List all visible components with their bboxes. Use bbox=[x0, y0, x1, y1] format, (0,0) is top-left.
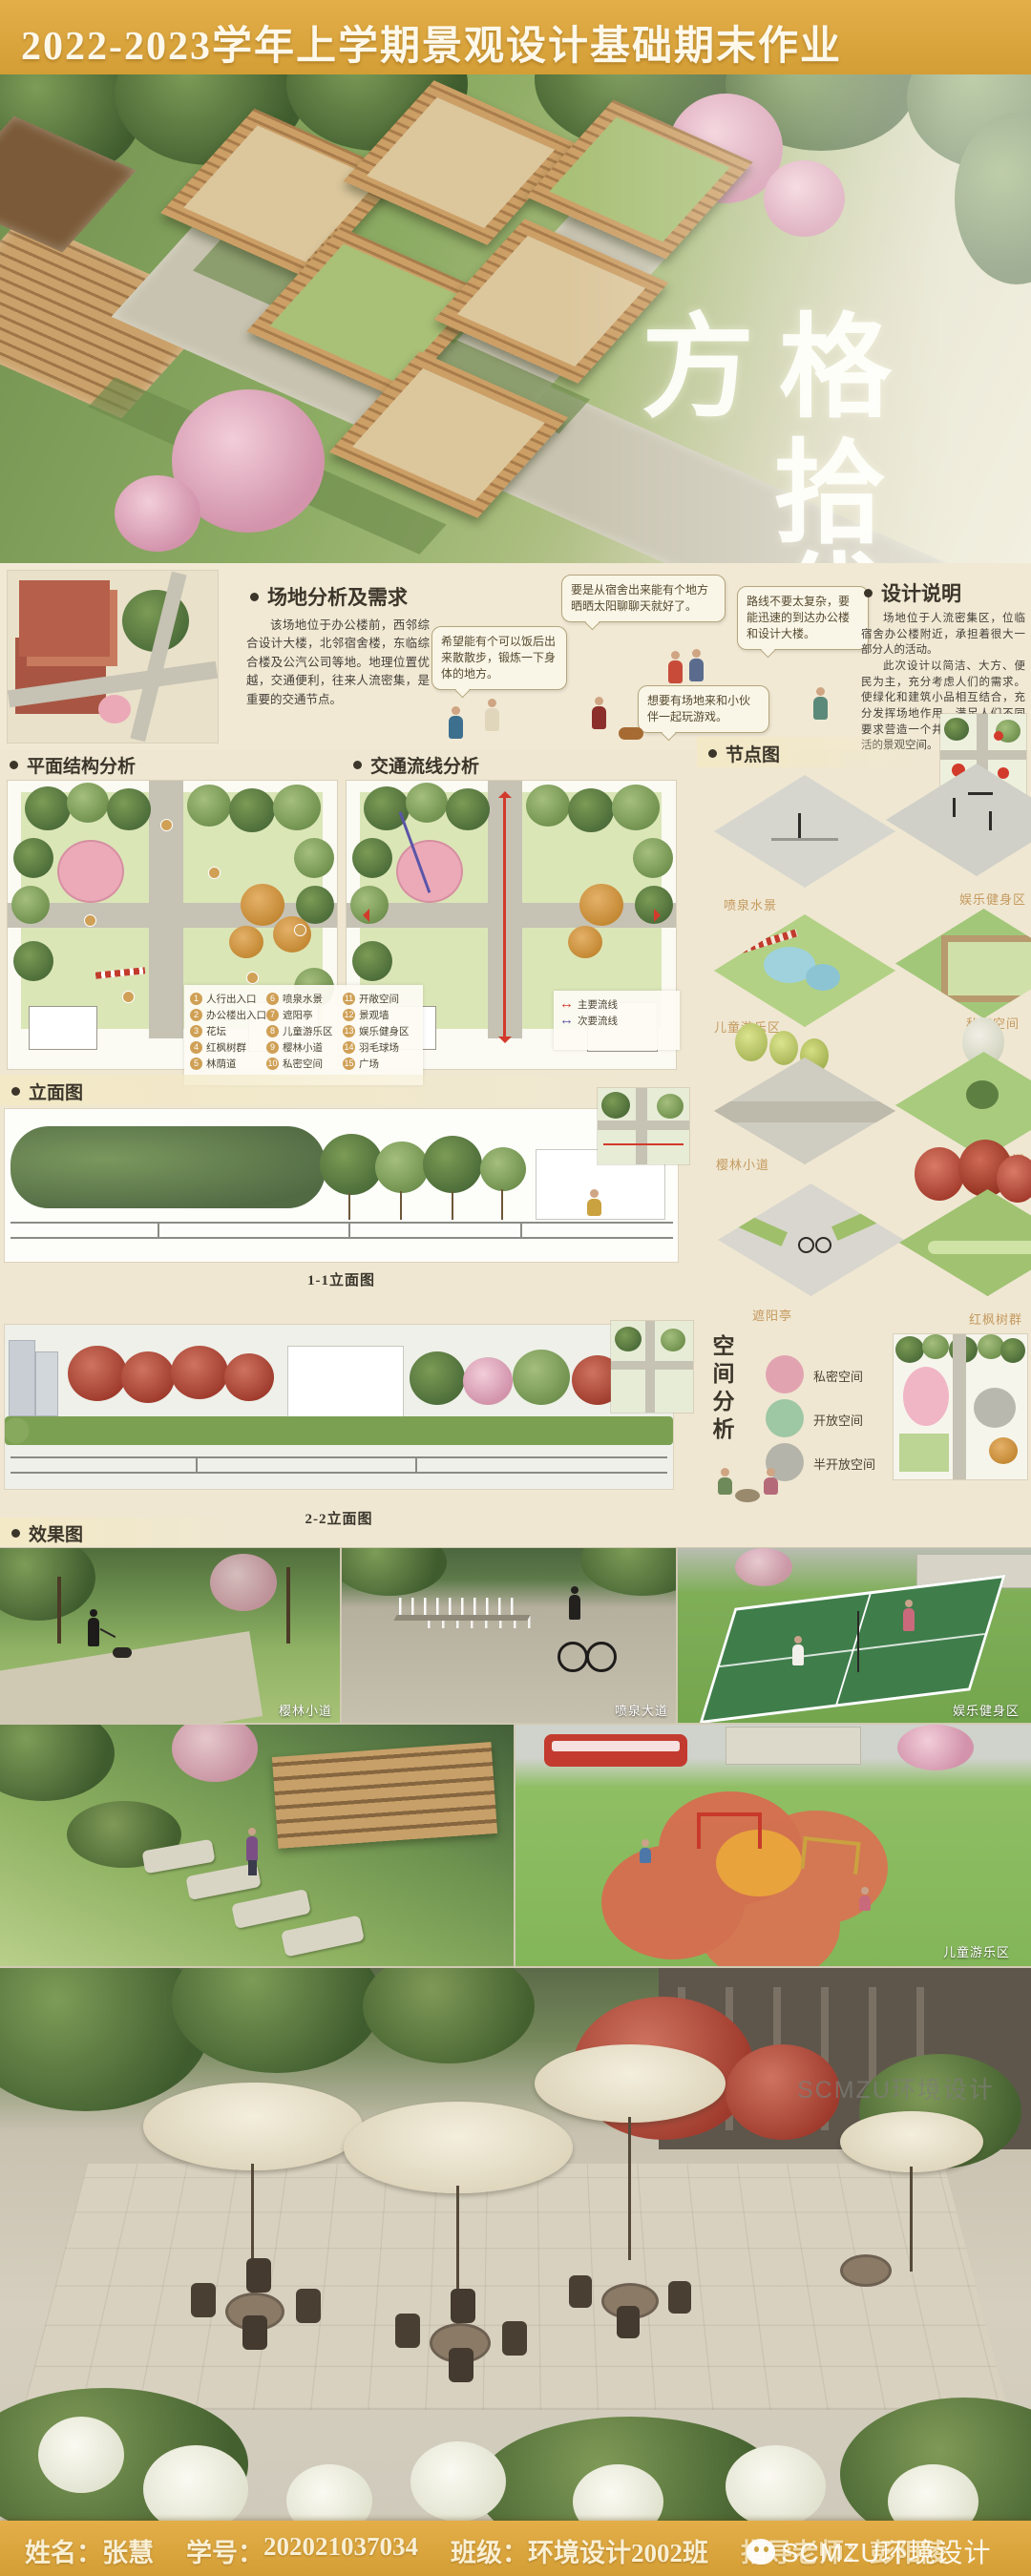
plaza-circle bbox=[57, 840, 124, 903]
dog-illustration bbox=[113, 1647, 132, 1658]
bullet-icon bbox=[250, 593, 259, 601]
umbrella bbox=[344, 2102, 573, 2193]
render-garden-path bbox=[0, 1725, 514, 1966]
umbrella bbox=[840, 2111, 983, 2172]
white-flower bbox=[286, 2464, 372, 2521]
person-illustration bbox=[764, 1468, 778, 1495]
wechat-ghost-icon bbox=[747, 2539, 775, 2565]
render-badminton-court: 娱乐健身区 bbox=[678, 1548, 1031, 1723]
legend-label: 景观墙 bbox=[359, 1008, 389, 1022]
elevation-2-drawing bbox=[5, 1325, 673, 1489]
red-maple-illustration bbox=[915, 1147, 964, 1201]
legend-label: 红枫树群 bbox=[206, 1040, 246, 1055]
legend-swatch-private bbox=[766, 1355, 804, 1393]
bullet-icon bbox=[864, 589, 873, 597]
arrowhead-icon bbox=[654, 909, 667, 922]
hero-render: 方格 拾代 bbox=[0, 74, 1031, 563]
bullet-icon bbox=[353, 761, 362, 769]
person-illustration bbox=[813, 687, 828, 720]
dog-illustration bbox=[619, 727, 643, 740]
hero-title-word-2: 拾代 bbox=[773, 439, 1031, 563]
elevation-key-plan bbox=[598, 1088, 689, 1164]
legend-label: 开敞空间 bbox=[359, 992, 399, 1006]
render-fountain-avenue: 喷泉大道 bbox=[342, 1548, 676, 1723]
space-key-plan bbox=[611, 1321, 693, 1413]
legend-label: 私密空间 bbox=[283, 1057, 323, 1071]
bullet-icon bbox=[708, 749, 717, 758]
tree-illustration bbox=[769, 1031, 798, 1065]
legend-label: 私密空间 bbox=[813, 1367, 863, 1385]
legend-label: 次要流线 bbox=[578, 1014, 618, 1028]
class-name: 环境设计2002班 bbox=[528, 2532, 708, 2569]
player-illustration bbox=[792, 1636, 804, 1665]
child-illustration bbox=[859, 1887, 871, 1911]
legend-label: 儿童游乐区 bbox=[283, 1024, 333, 1038]
person-illustration bbox=[718, 1468, 732, 1495]
legend-label: 娱乐健身区 bbox=[359, 1024, 410, 1038]
node-caption: 红枫树群 bbox=[969, 1309, 1022, 1328]
stone-patio bbox=[23, 2164, 1008, 2410]
play-structure bbox=[800, 1836, 860, 1874]
primary-route-arrow-icon: ↔ bbox=[559, 996, 574, 1013]
person-walking bbox=[246, 1828, 258, 1861]
id-label: 学号： bbox=[186, 2532, 263, 2569]
section-heading-plan-structure: 平面结构分析 bbox=[10, 752, 136, 778]
node-diagram-cherry-path bbox=[714, 1058, 895, 1164]
space-analysis-heading: 空间分析 bbox=[705, 1334, 737, 1445]
design-notes-para1: 场地位于人流密集区，位临宿舍办公楼附近，承担着很大一部分人的活动。 bbox=[861, 611, 1025, 659]
arrowhead-icon bbox=[356, 909, 369, 922]
render-caption: 喷泉大道 bbox=[615, 1701, 668, 1719]
chair bbox=[569, 2275, 592, 2308]
legend-label: 半开放空间 bbox=[813, 1455, 875, 1473]
chair bbox=[191, 2283, 216, 2317]
legend-label: 林荫道 bbox=[206, 1057, 237, 1071]
site-marker bbox=[98, 695, 131, 723]
render-patio: SCMZU环境设计 bbox=[0, 1968, 1031, 2521]
renders-heading: 效果图 bbox=[29, 1520, 83, 1546]
elevation-1-drawing bbox=[5, 1109, 678, 1262]
section-heading-design-notes: 设计说明 bbox=[864, 578, 961, 607]
legend-swatch-open bbox=[766, 1399, 804, 1437]
heading-band bbox=[0, 1075, 687, 1105]
chair bbox=[395, 2314, 420, 2348]
footer-watermark: SCMZU环境设计 bbox=[747, 2532, 992, 2570]
speech-bubble: 想要有场地来和小伙伴一起玩游戏。 bbox=[638, 685, 769, 733]
student-id: 202021037034 bbox=[263, 2532, 418, 2569]
class-label: 班级： bbox=[451, 2532, 528, 2569]
header-banner: 2022-2023学年上学期景观设计基础期末作业 bbox=[0, 0, 1031, 74]
plan-legend: 1人行出入口 2办公楼出入口 3花坛 4红枫树群 5林荫道 6喷泉水景 7遮阳亭… bbox=[184, 985, 423, 1085]
person-walking-dog bbox=[88, 1609, 99, 1646]
person-illustration bbox=[689, 649, 704, 681]
design-notes-heading: 设计说明 bbox=[881, 578, 961, 607]
render-cherry-path: 樱林小道 bbox=[0, 1548, 340, 1723]
render-caption: 娱乐健身区 bbox=[953, 1701, 1020, 1719]
speech-bubble: 希望能有个可以饭后出来散散步，锻炼一下身体的地方。 bbox=[431, 626, 567, 690]
bicycle-wheel bbox=[586, 1642, 617, 1672]
legend-label: 遮阳亭 bbox=[283, 1008, 313, 1022]
render-caption: 樱林小道 bbox=[279, 1701, 332, 1719]
person-illustration bbox=[449, 706, 463, 739]
node-caption: 喷泉水景 bbox=[724, 895, 777, 913]
table bbox=[225, 2293, 284, 2331]
fountain-jets bbox=[399, 1598, 523, 1615]
red-maple-illustration bbox=[997, 1155, 1031, 1203]
speech-bubble: 路线不要太复杂，要能迅速的到达办公楼和设计大楼。 bbox=[737, 586, 869, 650]
section-heading-site-analysis: 场地分析及需求 bbox=[250, 582, 408, 611]
node-caption: 娱乐健身区 bbox=[959, 890, 1026, 908]
plan-structure-heading: 平面结构分析 bbox=[27, 752, 136, 778]
legend-label: 花坛 bbox=[206, 1024, 226, 1038]
node-diagram-pavilion bbox=[718, 1183, 904, 1296]
footer-banner: 姓名： 张慧 学号： 202021037034 班级： 环境设计2002班 指导… bbox=[0, 2521, 1031, 2576]
footer-watermark-text: SCMZU环境设计 bbox=[781, 2532, 992, 2570]
poster-title: 2022-2023学年上学期景观设计基础期末作业 bbox=[21, 13, 842, 72]
bicycle-wheel bbox=[558, 1642, 588, 1672]
legend-label: 喷泉水景 bbox=[283, 992, 323, 1006]
play-structure bbox=[697, 1812, 762, 1849]
hero-title-word-1: 方格 bbox=[642, 313, 916, 426]
table bbox=[601, 2283, 659, 2319]
analysis-strip: 场地分析及需求 该场地位于办公楼前，西邻综合设计大楼，北邻宿舍楼，东临综合楼及公… bbox=[0, 563, 1031, 750]
node-caption: 遮阳亭 bbox=[752, 1306, 792, 1324]
poster-board: 2022-2023学年上学期景观设计基础期末作业 方格 拾代 bbox=[0, 0, 1031, 2576]
player-illustration bbox=[903, 1600, 915, 1631]
node-diagram-private bbox=[895, 909, 1031, 1018]
cyclist-illustration bbox=[569, 1586, 580, 1620]
circulation-legend: ↔主要流线 ↔次要流线 bbox=[554, 991, 680, 1050]
arrowhead-icon bbox=[498, 785, 512, 798]
node-diagram-open bbox=[895, 1052, 1031, 1159]
wood-fence bbox=[272, 1742, 497, 1849]
node-diagram-maple bbox=[899, 1189, 1031, 1296]
person-illustration bbox=[592, 697, 606, 729]
person-illustration bbox=[485, 699, 499, 731]
section-heading-nodes: 节点图 bbox=[708, 741, 780, 766]
tree-illustration bbox=[735, 1023, 768, 1061]
child-illustration bbox=[640, 1839, 651, 1863]
elevation-1-label: 1-1立面图 bbox=[5, 1269, 678, 1289]
primary-flow-arrow bbox=[503, 798, 506, 1037]
render-caption: 儿童游乐区 bbox=[943, 1942, 1010, 1960]
node-diagram-fountain bbox=[714, 775, 895, 888]
secondary-route-arrow-icon: ↔ bbox=[559, 1013, 574, 1029]
site-location-plan bbox=[8, 571, 218, 743]
legend-label: 开放空间 bbox=[813, 1411, 863, 1429]
legend-label: 办公楼出入口 bbox=[206, 1008, 266, 1022]
bullet-icon bbox=[10, 761, 18, 769]
white-flower bbox=[38, 2417, 124, 2493]
nodes-heading: 节点图 bbox=[726, 741, 780, 766]
umbrella bbox=[535, 2044, 726, 2123]
watermark-text: SCMZU环境设计 bbox=[797, 2071, 995, 2105]
legend-label: 人行出入口 bbox=[206, 992, 257, 1006]
section-heading-elevations: 立面图 bbox=[11, 1079, 83, 1104]
person-illustration bbox=[587, 1189, 601, 1216]
umbrella bbox=[143, 2083, 363, 2170]
bullet-icon bbox=[11, 1087, 20, 1096]
bus-illustration bbox=[544, 1734, 687, 1767]
render-playground: 儿童游乐区 bbox=[515, 1725, 1031, 1966]
person-illustration bbox=[668, 651, 683, 683]
space-analysis-plan bbox=[894, 1334, 1027, 1479]
table bbox=[430, 2323, 491, 2363]
name-label: 姓名： bbox=[25, 2532, 102, 2569]
white-flower bbox=[410, 2441, 506, 2521]
speech-bubble: 要是从宿舍出来能有个地方晒晒太阳聊聊天就好了。 bbox=[561, 575, 726, 622]
section-heading-circulation: 交通流线分析 bbox=[353, 752, 479, 778]
legend-label: 广场 bbox=[359, 1057, 379, 1071]
table-illustration bbox=[735, 1489, 760, 1502]
elevations-heading: 立面图 bbox=[29, 1079, 83, 1104]
legend-label: 主要流线 bbox=[578, 997, 618, 1012]
node-caption: 樱林小道 bbox=[716, 1155, 769, 1173]
table bbox=[840, 2254, 892, 2287]
circulation-heading: 交通流线分析 bbox=[370, 752, 479, 778]
bullet-icon bbox=[11, 1529, 20, 1538]
site-analysis-heading: 场地分析及需求 bbox=[267, 582, 408, 611]
legend-label: 樱林小道 bbox=[283, 1040, 323, 1055]
section-heading-renders: 效果图 bbox=[11, 1520, 83, 1546]
node-diagram-children bbox=[714, 914, 895, 1027]
arrowhead-icon bbox=[498, 1037, 512, 1050]
legend-label: 羽毛球场 bbox=[359, 1040, 399, 1055]
white-flower bbox=[726, 2445, 826, 2521]
student-name: 张慧 bbox=[102, 2532, 154, 2569]
site-analysis-body: 该场地位于办公楼前，西邻综合设计大楼，北邻宿舍楼，东临综合楼及公汽公司等地。地理… bbox=[246, 617, 430, 709]
building-block bbox=[19, 580, 110, 657]
